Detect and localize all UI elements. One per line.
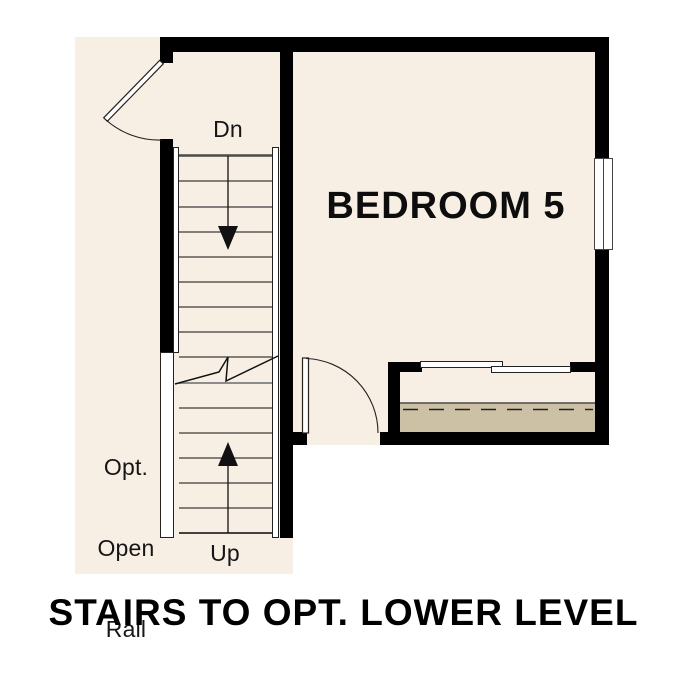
bedroom-floor [293, 52, 595, 432]
wall-stair-left [160, 139, 173, 353]
wall-closet-left [388, 362, 400, 432]
label-opt-open-rail-line1: Opt. [84, 454, 168, 481]
wall-bottom [380, 432, 609, 445]
label-bedroom: BEDROOM 5 [316, 185, 576, 228]
floorplan-canvas: Dn BEDROOM 5 Opt. Open Rail Up STAIRS TO… [0, 0, 687, 687]
plan-caption: STAIRS TO OPT. LOWER LEVEL [0, 592, 687, 634]
label-up: Up [197, 540, 253, 567]
closet-shelf [400, 403, 595, 432]
wall-closet-top-right-stub [570, 362, 595, 372]
wall-closet-top-left-stub [388, 362, 422, 372]
sliding-door-right [491, 366, 571, 373]
label-opt-open-rail: Opt. Open Rail [84, 400, 168, 687]
window-divider [603, 159, 604, 249]
wall-entry-door-stub-top [160, 52, 173, 63]
wall-bedroom-door-stub [293, 432, 307, 445]
stair-rail-left-upper [173, 147, 179, 353]
label-opt-open-rail-line2: Open [84, 535, 168, 562]
door-threshold [306, 432, 380, 445]
window [594, 158, 613, 250]
wall-top [160, 37, 609, 52]
label-down: Dn [200, 116, 256, 143]
stair-rail-right [272, 147, 279, 538]
wall-interior-stair-bedroom [280, 52, 293, 538]
